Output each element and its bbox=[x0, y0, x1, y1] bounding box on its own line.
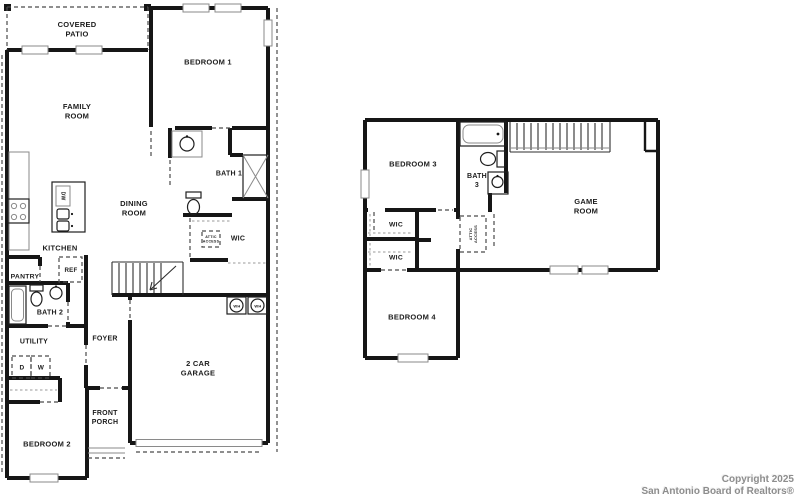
labels-layer: COVEREDPATIOFAMILYROOMBEDROOM 1BATH 1DIN… bbox=[11, 20, 599, 449]
floor-plan-image: COVEREDPATIOFAMILYROOMBEDROOM 1BATH 1DIN… bbox=[0, 0, 800, 500]
label-dishwasher: DW bbox=[59, 192, 65, 201]
window bbox=[183, 4, 209, 12]
label-family-room: FAMILYROOM bbox=[63, 102, 91, 120]
label-kitchen: KITCHEN bbox=[42, 244, 77, 253]
bath1-toilet-icon bbox=[186, 192, 201, 215]
label-wic-floor2-a: WIC bbox=[389, 221, 403, 228]
copyright-line2: San Antonio Board of Realtors® bbox=[641, 486, 794, 498]
label-utility: UTILITY bbox=[20, 338, 48, 345]
label-pantry: PANTRY bbox=[11, 273, 40, 280]
label-front-porch: FRONTPORCH bbox=[92, 410, 119, 426]
label-bedroom-1: BEDROOM 1 bbox=[184, 58, 232, 67]
label-wic-floor2-b: WIC bbox=[389, 254, 403, 261]
label-attic-access-floor1: ATTICACCESS bbox=[203, 235, 220, 244]
window bbox=[264, 20, 272, 46]
label-water-heater-1: WH bbox=[233, 303, 240, 308]
window bbox=[582, 266, 608, 274]
label-dining-room: DININGROOM bbox=[120, 199, 148, 217]
label-bath-2: BATH 2 bbox=[37, 309, 63, 316]
window bbox=[398, 354, 428, 362]
kitchen-fixtures bbox=[8, 152, 85, 282]
garage-door bbox=[136, 440, 262, 447]
bath1-sink-icon bbox=[180, 135, 194, 151]
bath2-fixtures bbox=[9, 285, 62, 324]
label-garage: 2 CARGARAGE bbox=[181, 359, 215, 377]
window bbox=[361, 170, 369, 198]
copyright-notice: Copyright 2025 San Antonio Board of Real… bbox=[641, 474, 794, 498]
kitchen-counter bbox=[9, 152, 29, 250]
copyright-line1: Copyright 2025 bbox=[641, 474, 794, 486]
bath1-vanity bbox=[172, 131, 202, 157]
label-bedroom-4: BEDROOM 4 bbox=[388, 313, 436, 322]
shower-icon bbox=[243, 155, 268, 198]
utility-fixtures bbox=[12, 356, 50, 378]
stairs-second-floor bbox=[510, 122, 610, 152]
bath2-sink-icon bbox=[50, 285, 62, 299]
bath1-fixtures bbox=[172, 131, 268, 247]
label-bedroom-2: BEDROOM 2 bbox=[23, 440, 71, 449]
kitchen-sink-icon bbox=[57, 209, 73, 231]
label-water-heater-2: WH bbox=[254, 303, 261, 308]
window bbox=[30, 474, 58, 482]
label-bath-3: BATH3 bbox=[467, 173, 487, 189]
label-attic-access-floor2: ATTICACCESS bbox=[468, 225, 478, 243]
label-washer: W bbox=[38, 364, 45, 371]
label-game-room: GAMEROOM bbox=[574, 197, 598, 215]
bath2-tub-icon bbox=[9, 286, 26, 324]
label-dryer: D bbox=[20, 364, 25, 371]
bath3-fixtures bbox=[460, 122, 508, 194]
window bbox=[76, 46, 102, 54]
stairs-first-floor bbox=[112, 262, 183, 295]
stove-icon bbox=[8, 199, 29, 223]
label-foyer: FOYER bbox=[92, 335, 117, 342]
label-wic-floor1: WIC bbox=[231, 235, 245, 242]
window bbox=[215, 4, 241, 12]
label-ref: REF bbox=[64, 267, 77, 274]
label-bath-1: BATH 1 bbox=[216, 170, 242, 177]
label-bedroom-3: BEDROOM 3 bbox=[389, 160, 437, 169]
window bbox=[550, 266, 578, 274]
second-floor-plan bbox=[361, 120, 658, 362]
label-covered-patio: COVEREDPATIO bbox=[58, 20, 97, 38]
bath3-toilet-icon bbox=[481, 151, 506, 167]
porch-steps bbox=[88, 448, 125, 453]
floorplan-svg: COVEREDPATIOFAMILYROOMBEDROOM 1BATH 1DIN… bbox=[0, 0, 800, 500]
window bbox=[22, 46, 48, 54]
f1-shelf-lines bbox=[10, 154, 268, 390]
bath2-toilet-icon bbox=[30, 285, 43, 306]
bath3-tub-icon bbox=[460, 122, 506, 146]
